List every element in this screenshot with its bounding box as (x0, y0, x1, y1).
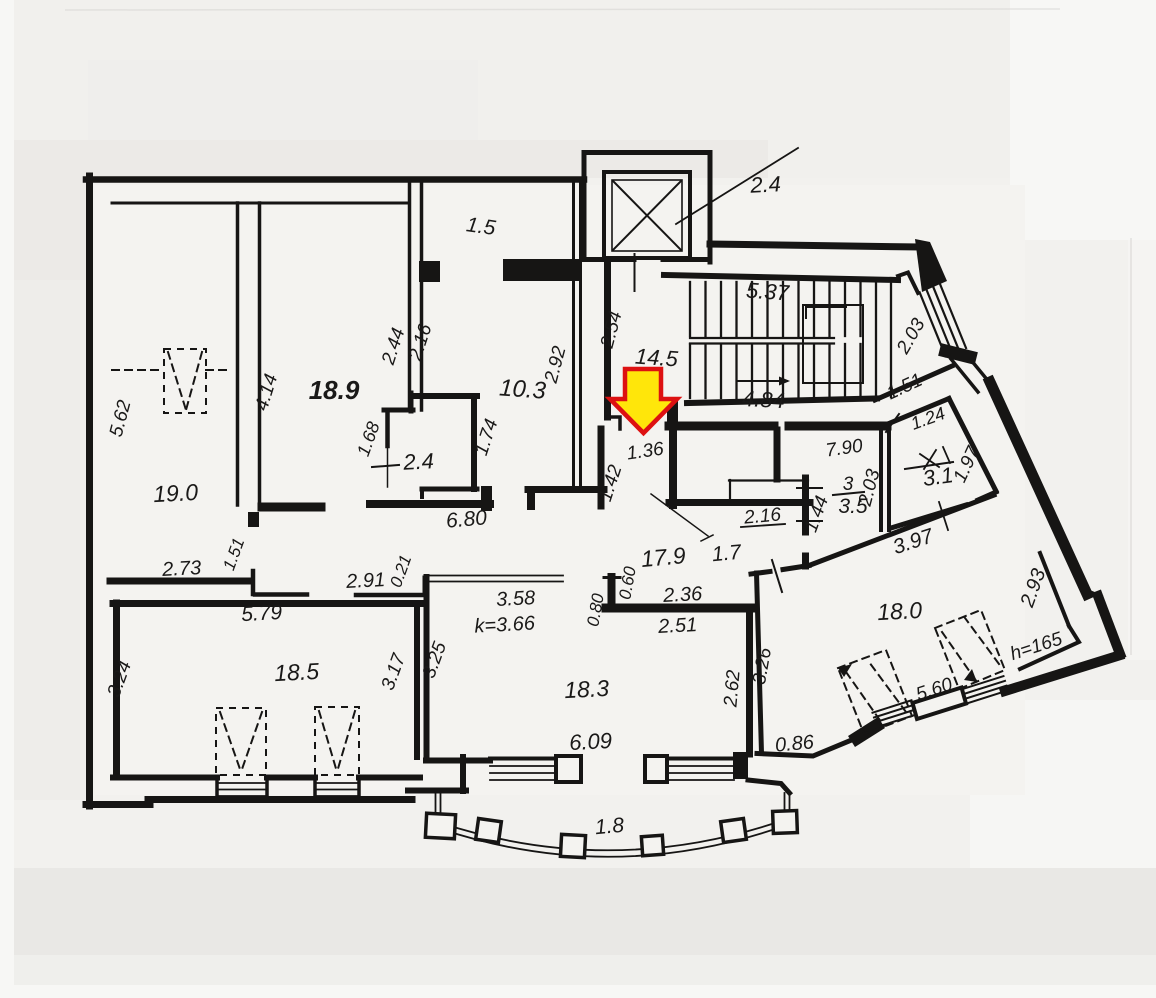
svg-text:1.7: 1.7 (711, 541, 743, 567)
svg-text:3.1: 3.1 (921, 462, 955, 491)
svg-text:2.4: 2.4 (402, 448, 435, 475)
svg-text:1.5: 1.5 (465, 213, 497, 240)
svg-text:18.3: 18.3 (564, 675, 610, 703)
svg-text:2.51: 2.51 (657, 614, 698, 638)
svg-text:3: 3 (843, 474, 854, 495)
svg-text:17.9: 17.9 (640, 542, 687, 572)
svg-text:6.80: 6.80 (445, 506, 488, 533)
svg-text:6.09: 6.09 (569, 728, 613, 755)
svg-text:5.37: 5.37 (745, 278, 790, 306)
svg-text:18.9: 18.9 (309, 375, 360, 405)
svg-text:2.4: 2.4 (749, 171, 782, 198)
svg-text:2.73: 2.73 (161, 557, 202, 581)
svg-text:1.8: 1.8 (594, 814, 625, 839)
svg-text:k=3.66: k=3.66 (474, 612, 537, 637)
svg-text:2.91: 2.91 (345, 569, 386, 593)
svg-text:5.79: 5.79 (241, 601, 283, 626)
svg-text:2.62: 2.62 (720, 669, 744, 709)
svg-text:18.0: 18.0 (877, 597, 923, 625)
svg-text:18.5: 18.5 (274, 658, 320, 686)
svg-text:3.58: 3.58 (496, 587, 536, 611)
svg-text:19.0: 19.0 (153, 479, 199, 507)
svg-text:0.86: 0.86 (774, 731, 816, 756)
svg-text:2.36: 2.36 (662, 583, 704, 607)
svg-text:14.5: 14.5 (634, 344, 679, 372)
svg-text:4.84: 4.84 (741, 386, 785, 413)
